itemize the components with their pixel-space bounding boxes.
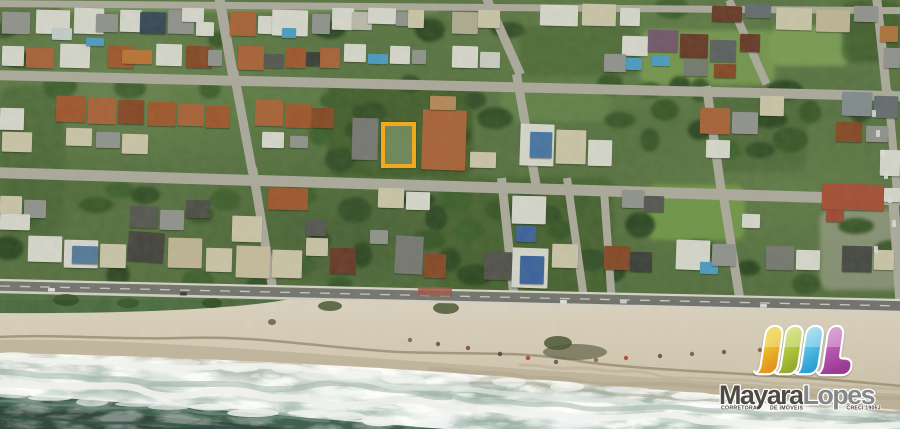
svg-text:CORRETORA: CORRETORA — [721, 406, 757, 412]
svg-text:DE IMÓVEIS: DE IMÓVEIS — [770, 404, 804, 412]
svg-text:CRECI 1905J: CRECI 1905J — [847, 406, 881, 412]
